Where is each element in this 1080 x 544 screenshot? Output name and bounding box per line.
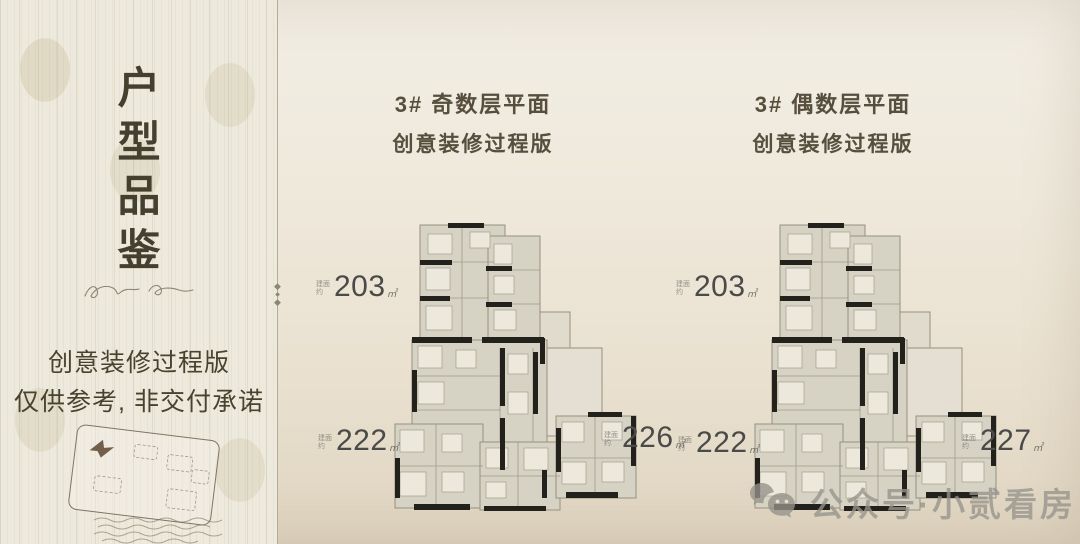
area-value: 222 <box>696 428 748 458</box>
signature-flourish-icon <box>79 278 199 304</box>
vertical-page-title: 户 型 品 鉴 <box>0 68 278 273</box>
area-unit: ㎡ <box>749 441 759 456</box>
floor-plan-odd <box>390 220 652 512</box>
plan2-title-line2: 创意装修过程版 <box>698 134 968 155</box>
plan2-title: 3# 偶数层平面 创意装修过程版 <box>698 94 968 155</box>
area-label: 建面约222㎡ <box>318 426 399 456</box>
area-value: 222 <box>336 426 388 456</box>
plan2-title-line1: 3# 偶数层平面 <box>698 94 968 116</box>
area-prefix: 建面约 <box>676 281 691 297</box>
page: 户 型 品 鉴 创意装修过程版 仅供参考, 非交付承诺 <box>0 0 1080 544</box>
disclaimer-line1: 创意装修过程版 <box>0 346 278 381</box>
vertical-divider <box>277 0 278 544</box>
watermark-text: 公众号·小贰看房 <box>810 478 1076 526</box>
bird-icon <box>86 436 119 463</box>
title-char: 户 <box>118 68 161 111</box>
plan1-title-line2: 创意装修过程版 <box>338 134 608 155</box>
area-label: 建面约203㎡ <box>316 272 397 302</box>
sketch-shape <box>93 475 123 494</box>
wechat-icon <box>748 481 800 523</box>
area-prefix: 建面约 <box>318 435 333 451</box>
title-char: 品 <box>118 176 161 219</box>
sidebar-disclaimer: 创意装修过程版 仅供参考, 非交付承诺 <box>0 346 278 420</box>
disclaimer-line2: 仅供参考, 非交付承诺 <box>0 385 278 420</box>
area-value: 203 <box>334 272 386 302</box>
area-unit: ㎡ <box>1033 439 1043 454</box>
floor-plan-even <box>750 220 1012 512</box>
area-prefix: 建面约 <box>678 437 693 453</box>
area-unit: ㎡ <box>387 285 397 300</box>
sketch-card <box>67 424 220 527</box>
sketch-shape <box>133 444 159 461</box>
area-value: 203 <box>694 272 746 302</box>
area-prefix: 建面约 <box>316 281 331 297</box>
title-char: 鉴 <box>118 230 161 273</box>
wave-lines <box>92 516 252 544</box>
watermark: 公众号·小贰看房 <box>748 478 1076 526</box>
area-label: 建面约222㎡ <box>678 428 759 458</box>
title-char: 型 <box>118 122 161 165</box>
plan1-title: 3# 奇数层平面 创意装修过程版 <box>338 94 608 155</box>
area-value: 226 <box>622 423 674 453</box>
sidebar: 户 型 品 鉴 创意装修过程版 仅供参考, 非交付承诺 <box>0 0 278 544</box>
area-value: 227 <box>980 426 1032 456</box>
sketch-shape <box>190 469 210 485</box>
area-label: 建面约203㎡ <box>676 272 757 302</box>
plan1-title-line1: 3# 奇数层平面 <box>338 94 608 116</box>
divider-ornament-icon: ◆◆◆ <box>270 282 285 308</box>
area-unit: ㎡ <box>389 439 399 454</box>
area-prefix: 建面约 <box>604 432 619 448</box>
sketch-shape <box>166 454 194 473</box>
sketch-shape <box>165 488 197 512</box>
area-label: 建面约227㎡ <box>962 426 1043 456</box>
area-unit: ㎡ <box>747 285 757 300</box>
area-label: 建面约226㎡ <box>604 423 685 453</box>
area-prefix: 建面约 <box>962 435 977 451</box>
